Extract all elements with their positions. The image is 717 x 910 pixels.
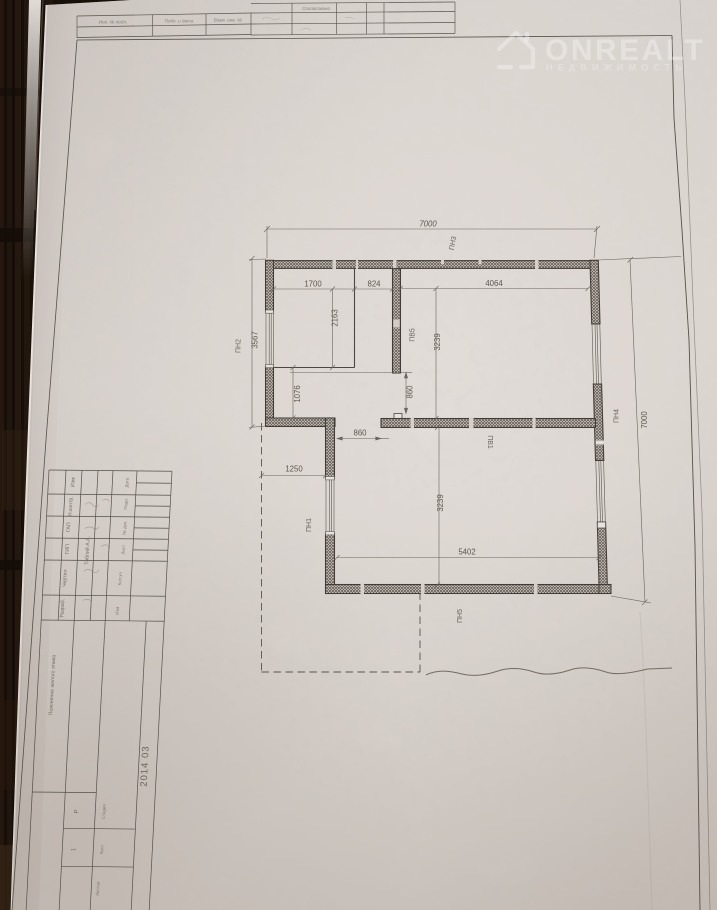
- svg-text:2163: 2163: [331, 309, 340, 326]
- svg-text:Н.контр.: Н.контр.: [68, 496, 75, 516]
- svg-text:Подп. и дата: Подп. и дата: [165, 19, 194, 24]
- svg-text:7000: 7000: [640, 411, 649, 429]
- svg-text:824: 824: [367, 280, 381, 289]
- svg-text:ПВ1: ПВ1: [486, 435, 493, 449]
- svg-text:2014 03: 2014 03: [139, 745, 152, 786]
- svg-text:3239: 3239: [436, 494, 445, 511]
- svg-text:Разраб.: Разраб.: [59, 599, 66, 618]
- svg-text:ПВ5: ПВ5: [410, 328, 417, 342]
- svg-text:Подп.: Подп.: [123, 498, 129, 510]
- svg-text:ПН2: ПН2: [236, 339, 243, 353]
- svg-text:Лист: Лист: [99, 845, 104, 855]
- svg-text:ГАП: ГАП: [66, 522, 73, 532]
- svg-text:Дата: Дата: [124, 477, 130, 487]
- svg-text:4064: 4064: [485, 279, 503, 288]
- svg-text:№ док.: № док.: [122, 521, 128, 535]
- svg-text:1700: 1700: [304, 280, 322, 289]
- svg-text:ПН4: ПН4: [614, 409, 621, 423]
- svg-text:Изм: Изм: [115, 607, 120, 615]
- svg-text:Чертил: Чертил: [62, 569, 69, 586]
- svg-text:ГИП: ГИП: [65, 544, 72, 555]
- svg-text:Стадия: Стадия: [101, 804, 107, 820]
- svg-text:3239: 3239: [433, 333, 442, 350]
- svg-text:НЕДВИЖИМОСТЬ: НЕДВИЖИМОСТЬ: [546, 63, 687, 73]
- svg-text:Листов: Листов: [95, 881, 101, 896]
- svg-text:1250: 1250: [285, 465, 303, 474]
- svg-text:ПН5: ПН5: [457, 609, 464, 623]
- svg-text:Инв. № подл.: Инв. № подл.: [99, 20, 128, 25]
- svg-text:7000: 7000: [419, 220, 437, 229]
- svg-text:3567: 3567: [251, 331, 260, 348]
- svg-text:Изм: Изм: [70, 477, 77, 487]
- svg-text:ПН1: ПН1: [306, 518, 313, 532]
- svg-text:5402: 5402: [458, 548, 475, 557]
- svg-text:1076: 1076: [293, 385, 302, 402]
- svg-text:Согласовано: Согласовано: [302, 6, 330, 11]
- svg-text:Р: Р: [74, 809, 80, 813]
- svg-text:Кол.уч: Кол.уч: [117, 572, 123, 585]
- svg-text:Взам. инв. №: Взам. инв. №: [214, 18, 242, 23]
- svg-text:Лист: Лист: [121, 545, 126, 555]
- svg-text:860: 860: [406, 385, 415, 399]
- svg-text:860: 860: [353, 429, 367, 438]
